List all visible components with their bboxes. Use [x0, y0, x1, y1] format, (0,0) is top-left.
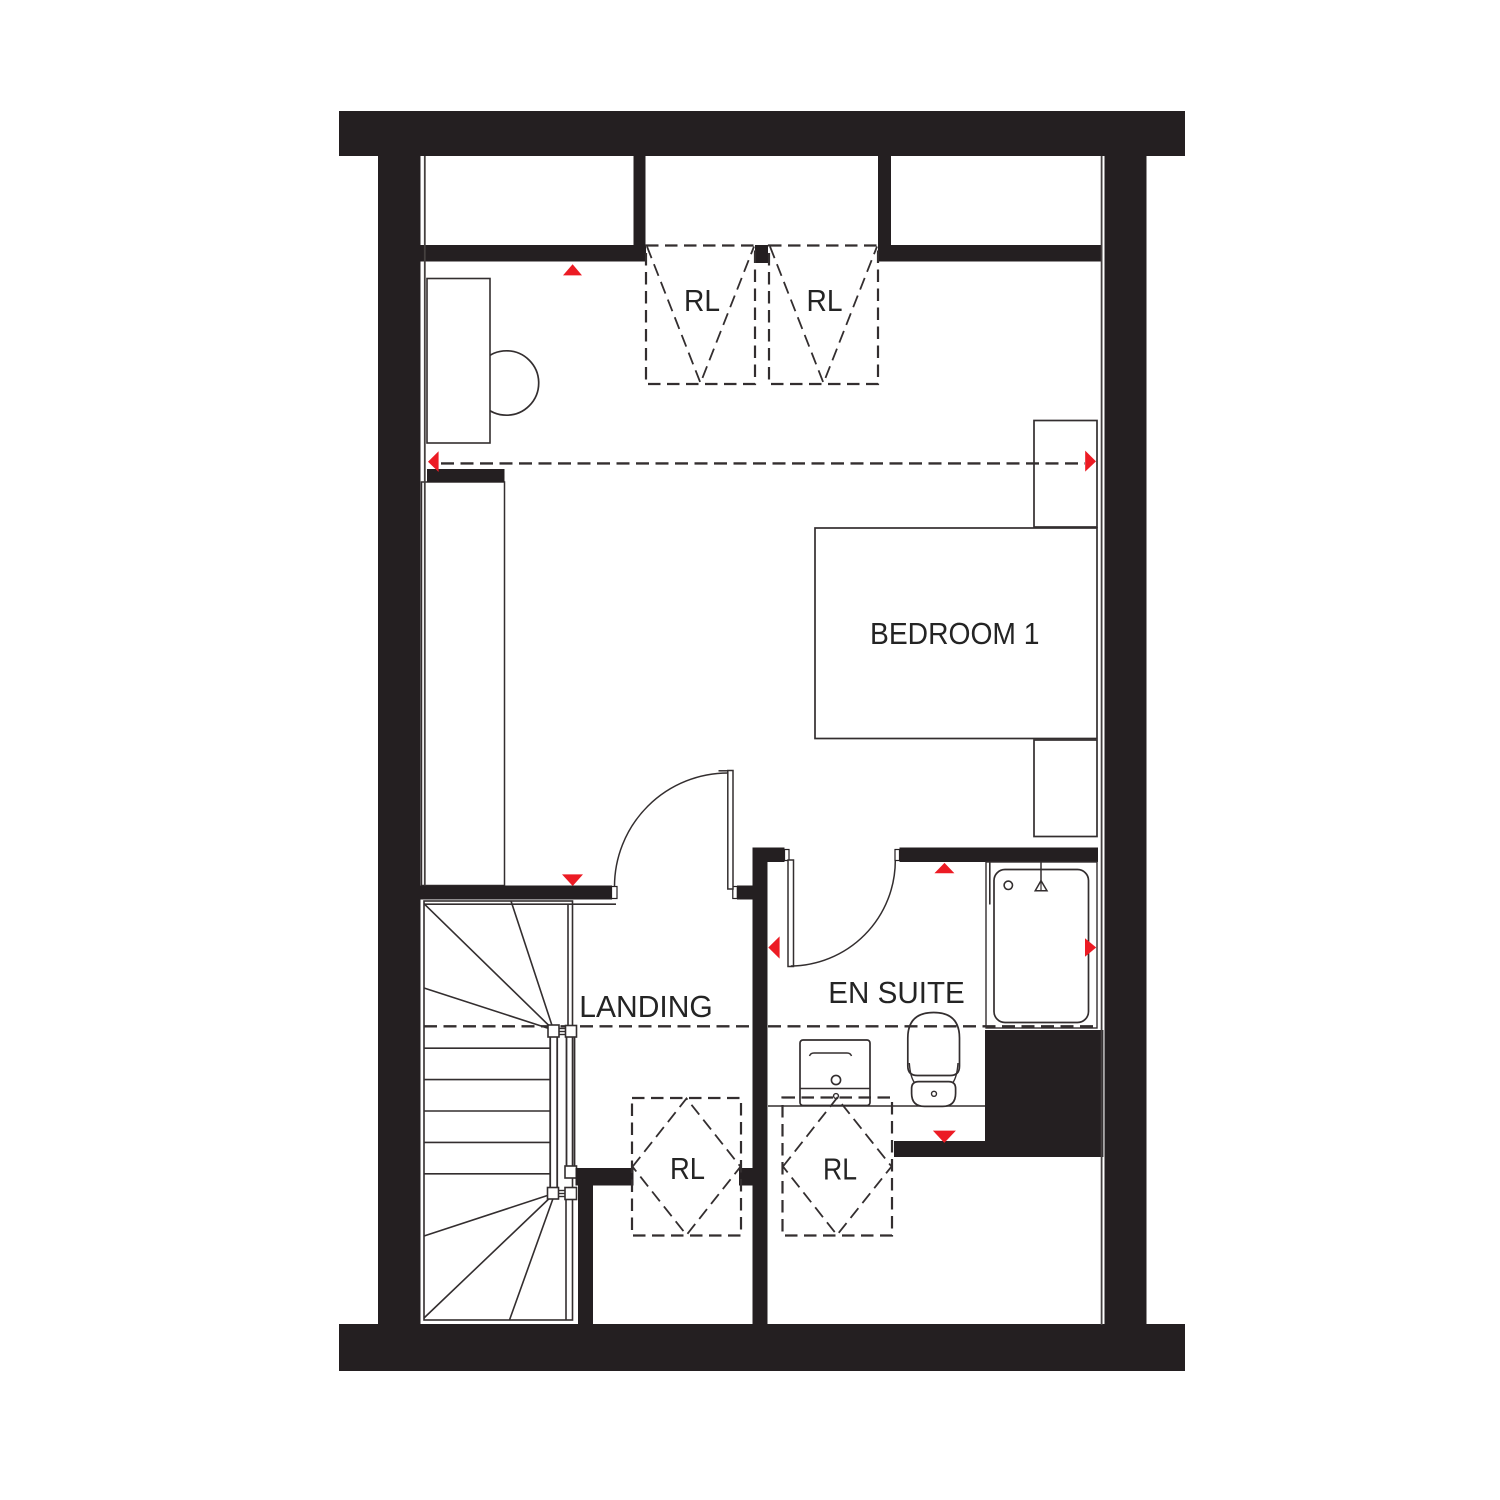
svg-text:LANDING: LANDING	[579, 990, 713, 1024]
svg-text:RL: RL	[670, 1152, 705, 1186]
svg-text:RL: RL	[807, 284, 843, 318]
svg-text:EN SUITE: EN SUITE	[828, 976, 965, 1010]
svg-text:RL: RL	[823, 1153, 857, 1187]
svg-text:RL: RL	[684, 284, 720, 318]
svg-text:BEDROOM 1: BEDROOM 1	[870, 617, 1040, 651]
